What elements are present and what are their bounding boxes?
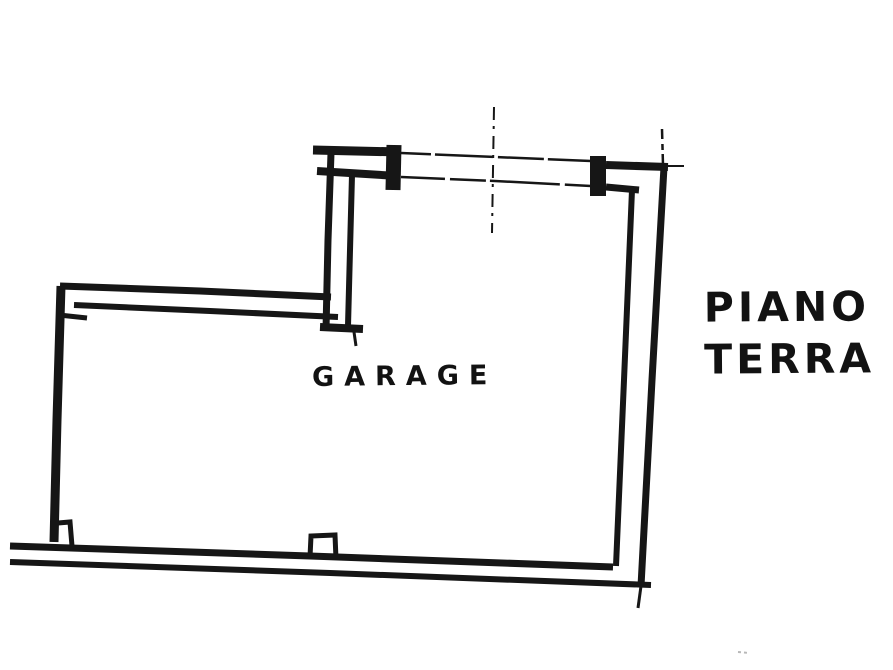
garage-door-centerline	[492, 107, 494, 233]
left-wall	[54, 286, 61, 542]
left-wall-foot	[58, 522, 72, 546]
upper-left-wall-endcap-overshoot	[354, 332, 356, 346]
garage-door-threshold-outer	[401, 153, 591, 161]
middle-wall-inner	[74, 305, 338, 317]
right-wall-outer-overshoot-bottom	[638, 586, 641, 608]
garage-door-threshold-inner	[401, 177, 591, 186]
scan-speck	[738, 652, 749, 653]
floor-plan-canvas: GARAGE PIANO TERRA	[0, 0, 893, 670]
floor-label-piano-terra: PIANO TERRA	[704, 280, 876, 385]
upper-left-wall-inner	[348, 175, 352, 326]
floor-label-line1: PIANO	[704, 280, 875, 333]
floor-label-line2: TERRA	[704, 332, 875, 385]
right-wall-inner	[616, 190, 632, 566]
room-label-garage: GARAGE	[312, 360, 498, 393]
upper-left-wall-outer	[326, 153, 331, 330]
upper-left-wall-endcap	[320, 327, 363, 329]
right-wall-outer	[641, 167, 664, 586]
left-wall-junction-tick	[59, 315, 87, 318]
right-wall-outer-overshoot-top	[662, 129, 663, 165]
top-wall-right-outer	[606, 165, 668, 167]
garage-door-jamb-left	[393, 145, 394, 190]
top-wall-right-inner	[606, 187, 639, 190]
middle-wall-outer	[60, 286, 331, 297]
